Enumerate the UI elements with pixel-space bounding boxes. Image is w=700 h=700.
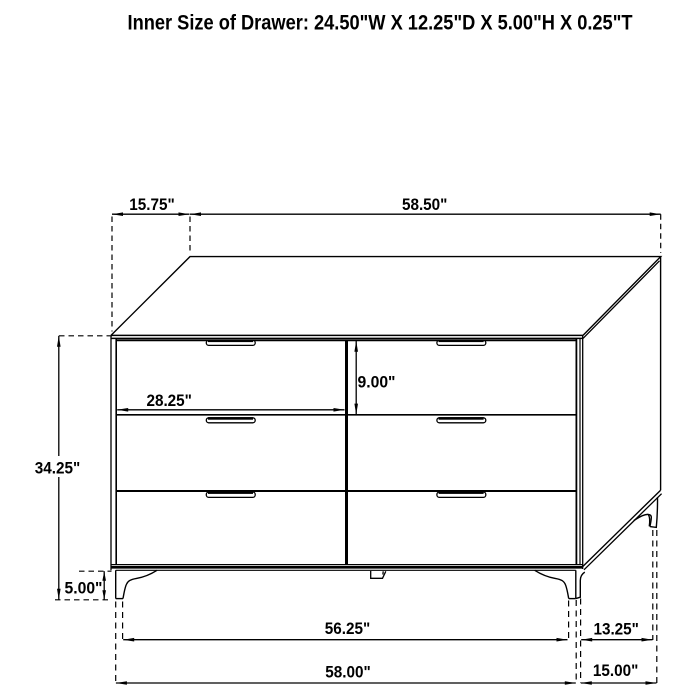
svg-text:58.00": 58.00" bbox=[325, 663, 371, 682]
svg-text:28.25": 28.25" bbox=[146, 391, 192, 410]
svg-text:5.00": 5.00" bbox=[65, 578, 103, 597]
svg-text:15.00": 15.00" bbox=[593, 661, 639, 680]
svg-text:15.75": 15.75" bbox=[129, 195, 175, 214]
svg-text:Inner Size of Drawer: 24.50"W: Inner Size of Drawer: 24.50"W X 12.25"D … bbox=[128, 12, 633, 35]
svg-text:34.25": 34.25" bbox=[35, 458, 81, 477]
svg-text:9.00": 9.00" bbox=[358, 372, 396, 391]
svg-text:58.50": 58.50" bbox=[402, 195, 448, 214]
svg-text:56.25": 56.25" bbox=[325, 619, 371, 638]
svg-text:13.25": 13.25" bbox=[593, 619, 639, 638]
